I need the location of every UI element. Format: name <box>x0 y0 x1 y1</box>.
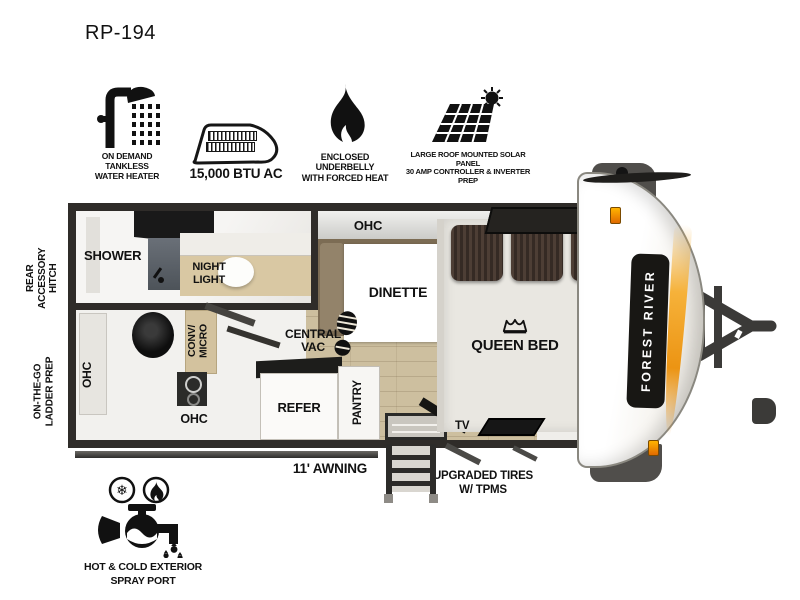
dinette-table: DINETTE <box>344 244 452 342</box>
shower-wand-head <box>158 277 164 283</box>
bathroom-vanity <box>180 233 311 256</box>
refrigerator: REFER <box>260 359 338 440</box>
label-pantry: PANTRY <box>352 370 365 436</box>
marker-light <box>610 207 621 224</box>
label-conv-micro: CONV/ MICRO <box>187 312 210 370</box>
label-night-light: NIGHT LIGHT <box>186 261 232 286</box>
brand-stripe: FOREST RIVER <box>626 253 669 408</box>
tv-screen <box>477 418 545 436</box>
bathroom: SHOWER NIGHT LIGHT <box>76 211 318 310</box>
burner <box>185 376 202 393</box>
label-ohc-left: OHC <box>81 324 95 388</box>
bed-frame-edge <box>437 219 444 432</box>
feature-label-heat: ENCLOSED UNDERBELLY WITH FORCED HEAT <box>295 152 395 183</box>
step-line <box>392 431 440 433</box>
label-ohc-top: OHC <box>318 219 418 234</box>
front-cap-roof-trim <box>583 170 691 185</box>
spray-port-icon: ❄ <box>90 476 198 558</box>
tongue-jack <box>752 398 776 424</box>
label-queen-bed: QUEEN BED <box>445 337 585 354</box>
trailer-shell: SHOWER NIGHT LIGHT OHC CONV/ MICRO OHC O… <box>68 203 640 448</box>
marker-light <box>648 440 659 456</box>
step-line <box>392 424 440 426</box>
hitch-a-frame <box>692 286 780 370</box>
label-tv: TV <box>455 420 469 433</box>
feature-label-water-heater: ON DEMAND TANKLESS WATER HEATER <box>77 152 177 181</box>
label-ohc-bottom: OHC <box>164 412 224 426</box>
flame-icon <box>317 82 375 150</box>
page-title: RP-194 <box>85 22 156 45</box>
crown-icon <box>501 317 529 334</box>
label-awning: 11' AWNING <box>270 461 390 477</box>
counter-edge <box>226 326 280 349</box>
feature-label-solar: LARGE ROOF MOUNTED SOLAR PANEL 30 AMP CO… <box>398 151 538 186</box>
ladder-icon <box>384 444 440 504</box>
label-shower: SHOWER <box>84 249 141 264</box>
rv-floorplan-diagram: RP-194 ON DEMAND TANKLESS WATER HEATER 1… <box>0 0 800 600</box>
ac-vent-grille <box>208 131 257 141</box>
shower-head-icon <box>96 80 168 150</box>
cooktop <box>177 372 207 406</box>
label-rear-accessory-hitch: REAR ACCESSORY HITCH <box>25 226 60 330</box>
kitchen-sink <box>132 312 174 358</box>
feature-label-ac: 15,000 BTU AC <box>181 166 291 182</box>
shower-partition <box>148 238 180 290</box>
svg-text:❄: ❄ <box>116 483 128 499</box>
burner <box>187 393 200 406</box>
label-refer: REFER <box>260 401 338 416</box>
label-on-the-go-ladder-prep: ON-THE-GO LADDER PREP <box>33 336 56 448</box>
solar-panel-icon <box>428 86 504 148</box>
ac-vent-grille <box>206 142 255 152</box>
label-spray-port: HOT & COLD EXTERIOR SPRAY PORT <box>72 561 214 588</box>
front-cap: FOREST RIVER <box>577 172 705 468</box>
brand-name: FOREST RIVER <box>639 262 658 400</box>
label-dinette: DINETTE <box>344 284 452 300</box>
front-window <box>485 207 592 234</box>
label-upgraded-tires: UPGRADED TIRES W/ TPMS <box>423 469 543 498</box>
pantry-cabinet: PANTRY <box>338 366 380 440</box>
awning-bar <box>75 451 378 458</box>
